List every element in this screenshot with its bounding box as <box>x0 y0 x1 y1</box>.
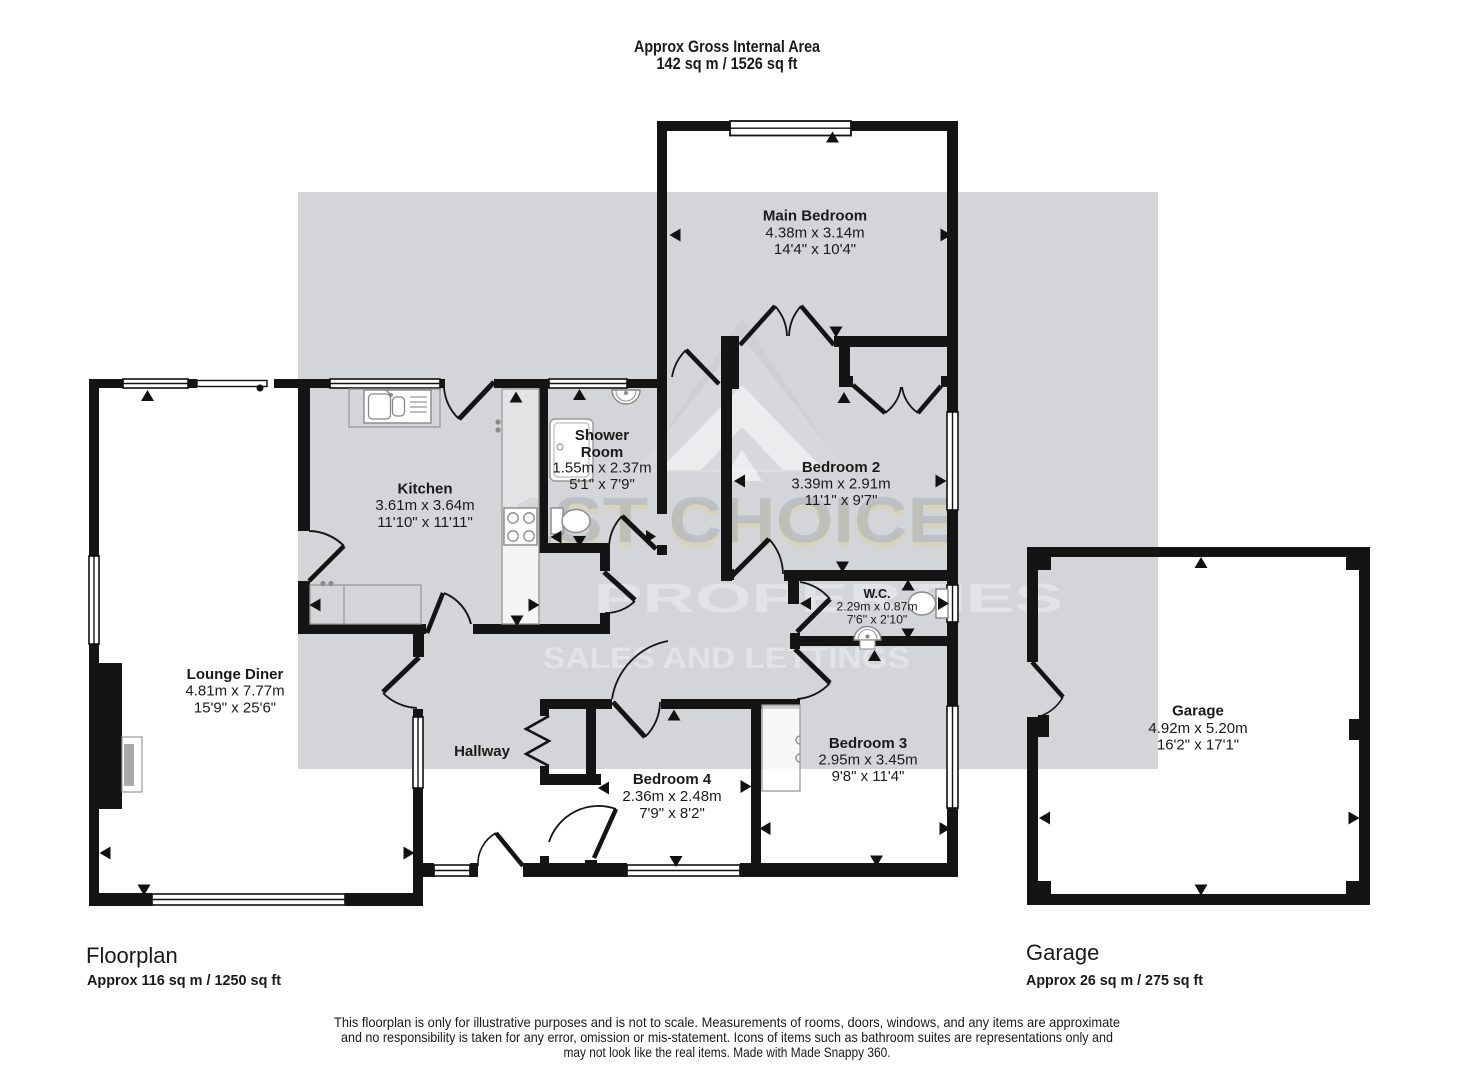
svg-text:may not look like the real ite: may not look like the real items. Made w… <box>564 1045 891 1060</box>
svg-text:Approx 26 sq m / 275 sq ft: Approx 26 sq m / 275 sq ft <box>1026 972 1203 989</box>
svg-text:4.92m x 5.20m: 4.92m x 5.20m <box>1148 720 1247 737</box>
svg-text:142 sq m / 1526 sq ft: 142 sq m / 1526 sq ft <box>657 54 798 73</box>
svg-text:Kitchen: Kitchen <box>397 481 452 498</box>
svg-text:Room: Room <box>581 444 624 461</box>
svg-text:5'1" x 7'9": 5'1" x 7'9" <box>569 476 635 493</box>
svg-text:Garage: Garage <box>1026 940 1099 965</box>
svg-text:and no responsibility is taken: and no responsibility is taken for any e… <box>341 1030 1113 1045</box>
svg-text:3.61m x 3.64m: 3.61m x 3.64m <box>375 497 474 514</box>
svg-text:4.38m x 3.14m: 4.38m x 3.14m <box>765 225 864 242</box>
svg-text:Shower: Shower <box>575 427 629 444</box>
svg-text:Bedroom 4: Bedroom 4 <box>633 771 712 788</box>
svg-text:2.95m x 3.45m: 2.95m x 3.45m <box>818 752 917 769</box>
svg-text:2.36m x 2.48m: 2.36m x 2.48m <box>622 788 721 805</box>
svg-text:16'2" x 17'1": 16'2" x 17'1" <box>1157 737 1239 754</box>
svg-text:Floorplan: Floorplan <box>86 943 178 968</box>
svg-text:7'9" x 8'2": 7'9" x 8'2" <box>639 805 705 822</box>
svg-text:Bedroom 2: Bedroom 2 <box>802 459 880 476</box>
svg-text:SALES AND LETTINGS: SALES AND LETTINGS <box>543 642 910 675</box>
svg-text:3.39m x 2.91m: 3.39m x 2.91m <box>791 476 890 493</box>
svg-text:Main Bedroom: Main Bedroom <box>763 208 867 225</box>
svg-text:Bedroom 3: Bedroom 3 <box>829 735 907 752</box>
svg-text:Garage: Garage <box>1172 703 1224 720</box>
svg-text:11'1" x 9'7": 11'1" x 9'7" <box>805 492 878 509</box>
svg-text:Approx 116 sq m / 1250 sq ft: Approx 116 sq m / 1250 sq ft <box>87 972 281 989</box>
svg-text:Lounge Diner: Lounge Diner <box>187 666 284 683</box>
svg-text:9'8" x 11'4": 9'8" x 11'4" <box>832 768 905 785</box>
svg-text:15'9" x 25'6": 15'9" x 25'6" <box>194 700 276 717</box>
svg-text:4.81m x 7.77m: 4.81m x 7.77m <box>185 683 284 700</box>
svg-text:11'10" x 11'11": 11'10" x 11'11" <box>377 514 473 531</box>
svg-text:This floorplan is only for ill: This floorplan is only for illustrative … <box>334 1015 1120 1030</box>
svg-text:2.29m x 0.87m: 2.29m x 0.87m <box>836 600 917 614</box>
svg-text:1.55m x 2.37m: 1.55m x 2.37m <box>552 460 651 477</box>
svg-text:14'4" x 10'4": 14'4" x 10'4" <box>774 241 856 258</box>
svg-text:Hallway: Hallway <box>454 743 511 760</box>
svg-text:7'6" x 2'10": 7'6" x 2'10" <box>847 613 908 627</box>
